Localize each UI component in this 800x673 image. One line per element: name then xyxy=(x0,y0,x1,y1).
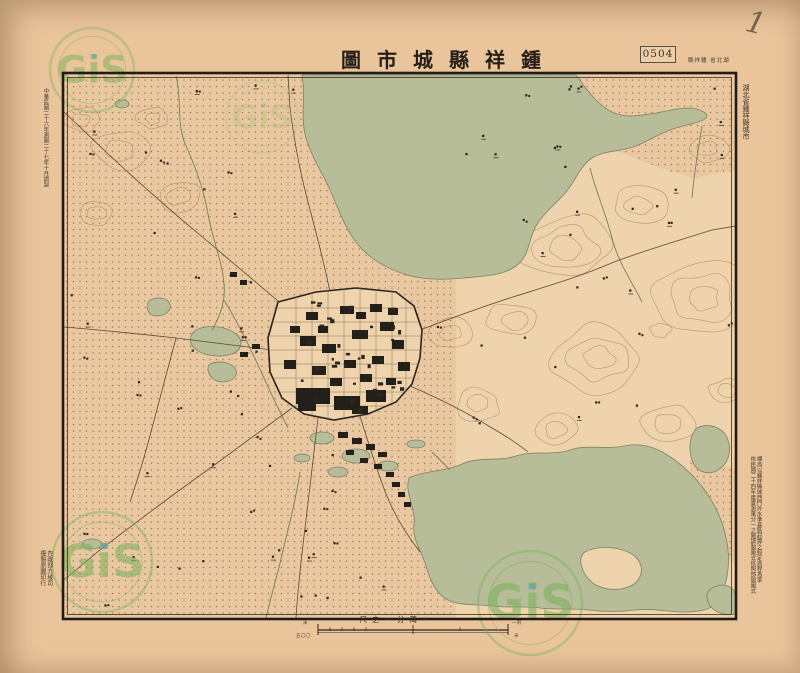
margin-note-bottom-left: 內政部方域司 複製原圖印行 xyxy=(38,550,52,616)
scale-label-right-top: 一粁 xyxy=(512,620,522,626)
margin-note-survey-date: 中華民國二十六年測圖二十七年十月調製 xyxy=(42,88,48,212)
margin-note-right: 標高以鍾祥縣城西門外水準基點起算之假定高程為準 依民國二十四年度實測萬分一之圖調… xyxy=(749,456,762,616)
svg-text:GiS: GiS xyxy=(231,98,292,136)
scale-label-left-bottom: 五〇〇 xyxy=(296,633,311,639)
margin-note-bl-col1: 內政部方域司 xyxy=(45,550,52,616)
scale-label-left-top: 米 xyxy=(303,620,308,626)
margin-note-top-right: 湖北省鍾祥縣城市 xyxy=(742,84,750,224)
map-canvas: GiSGiSGiSGiS xyxy=(0,0,800,673)
right-pond xyxy=(690,426,730,473)
margin-note-bl-col2: 複製原圖印行 xyxy=(38,550,45,616)
map-sheet: GiSGiSGiSGiS 鍾祥縣城市圖 0504 湖北省 鍾祥縣 湖北省鍾祥縣城… xyxy=(0,0,800,673)
scale-bar xyxy=(318,624,508,635)
scale-caption: 一萬分一之尺 xyxy=(360,614,435,625)
series-note: 湖北省 鍾祥縣 xyxy=(688,56,730,64)
margin-note-right-col1: 標高以鍾祥縣城西門外水準基點起算之假定高程為準 xyxy=(755,456,761,616)
scale-label-right-bottom: 米 xyxy=(514,633,519,639)
margin-note-right-col2: 依民國二十四年度實測萬分一之圖調製圖式依照部頒圖式 xyxy=(749,456,755,616)
svg-text:GiS: GiS xyxy=(56,48,127,92)
svg-text:GiS: GiS xyxy=(60,535,145,588)
map-title: 鍾祥縣城市圖 xyxy=(341,44,557,73)
sheet-number-box: 0504 xyxy=(640,46,676,63)
